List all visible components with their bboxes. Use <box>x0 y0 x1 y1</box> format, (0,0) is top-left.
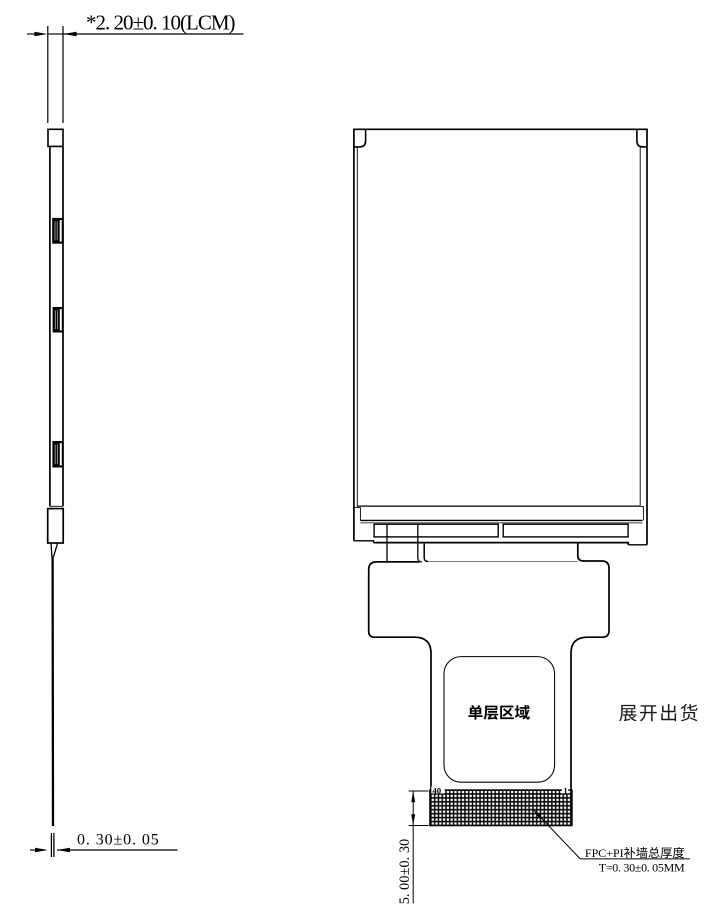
svg-text:FPC+PI: FPC+PI <box>585 846 624 860</box>
svg-text:1: 1 <box>563 785 567 795</box>
svg-text:T=0. 30±0. 05MM: T=0. 30±0. 05MM <box>599 861 685 875</box>
svg-text:0. 30±0. 05: 0. 30±0. 05 <box>77 832 160 849</box>
svg-text:5. 00±0. 30: 5. 00±0. 30 <box>397 839 413 905</box>
svg-text:*2. 20±0. 10(LCM): *2. 20±0. 10(LCM) <box>86 10 236 34</box>
svg-text:40: 40 <box>432 785 441 795</box>
